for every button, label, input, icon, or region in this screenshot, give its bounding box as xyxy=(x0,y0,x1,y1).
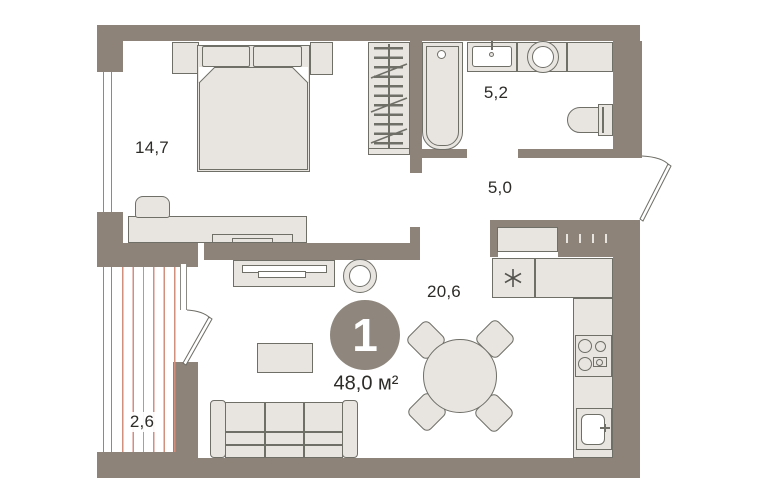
bathroom-area-label: 5,2 xyxy=(484,83,508,103)
wall-right-lower xyxy=(613,220,640,478)
burner xyxy=(578,339,592,353)
nightstand-right xyxy=(310,42,333,75)
toilet-tank-line xyxy=(602,107,604,133)
bathroom-counter xyxy=(567,42,613,72)
balcony-door-arc xyxy=(187,310,210,318)
balcony-area-label: 2,6 xyxy=(127,412,157,432)
wall-right-upper xyxy=(613,41,642,155)
coat-hook xyxy=(605,234,607,243)
coat-hook xyxy=(566,234,568,243)
balcony-door-leaf xyxy=(183,317,212,365)
wall-tv-partition-end xyxy=(410,227,420,260)
coat-hook xyxy=(592,234,594,243)
unit-number-badge: 1 xyxy=(330,300,400,370)
kitchen-wall-cabinet xyxy=(497,227,558,252)
bed-pillow-right xyxy=(253,46,302,67)
hallway-area-label: 5,0 xyxy=(488,178,512,198)
bedroom-area-label: 14,7 xyxy=(135,138,169,158)
sink-faucet xyxy=(491,41,493,50)
burner xyxy=(596,359,603,366)
kitchen-counter-top xyxy=(535,258,613,298)
sink-drain xyxy=(489,52,494,57)
entrance-door-leaf xyxy=(640,164,671,221)
bathtub-drain xyxy=(437,50,446,59)
balcony-glazing xyxy=(103,267,112,452)
living-kitchen-area-label: 20,6 xyxy=(427,282,461,302)
floor-plan: 14,7 5,2 5,0 20,6 2,6 1 48,0 м² xyxy=(0,0,770,500)
bed-blanket xyxy=(199,67,308,170)
sofa-seam xyxy=(264,403,266,457)
nightstand-left xyxy=(172,42,199,74)
sofa-seam xyxy=(226,444,342,446)
burner xyxy=(578,357,592,371)
toilet-bowl xyxy=(567,107,600,133)
total-area-label: 48,0 м² xyxy=(334,373,399,396)
washing-machine-drum xyxy=(532,46,554,68)
desk-chair xyxy=(135,196,170,218)
burner xyxy=(595,341,606,352)
sofa-seam xyxy=(226,431,342,433)
bedroom-window xyxy=(103,72,112,212)
balcony-door-fixed-pane xyxy=(180,264,187,310)
wall-tv-partition xyxy=(204,243,420,260)
tv-stand-bar xyxy=(258,271,306,278)
fridge xyxy=(492,258,535,298)
wall-bathroom-bottom-right xyxy=(518,149,642,158)
bathtub-inner xyxy=(426,46,459,146)
wardrobe-shelf xyxy=(368,148,410,155)
pouf-inner xyxy=(349,265,371,287)
kitchen-sink xyxy=(581,414,605,445)
sofa-armrest-right xyxy=(342,400,358,458)
desk-tray-inner xyxy=(232,238,273,243)
coat-hook xyxy=(579,234,581,243)
wall-balcony-bottom xyxy=(97,452,198,478)
wall-bathroom-bottom-left xyxy=(415,149,467,158)
wall-top xyxy=(97,25,640,41)
toilet-tank xyxy=(598,104,613,136)
bed-pillow-left xyxy=(202,46,250,67)
sofa-seam xyxy=(303,403,305,457)
wall-left-top xyxy=(97,25,123,72)
entrance-door-arc xyxy=(642,156,669,165)
coffee-table xyxy=(257,343,313,373)
wardrobe-rail xyxy=(388,44,390,150)
sofa-body xyxy=(225,402,343,458)
dining-table xyxy=(423,339,497,413)
kitchen-faucet-stub xyxy=(604,424,606,432)
sofa-armrest-left xyxy=(210,400,226,458)
